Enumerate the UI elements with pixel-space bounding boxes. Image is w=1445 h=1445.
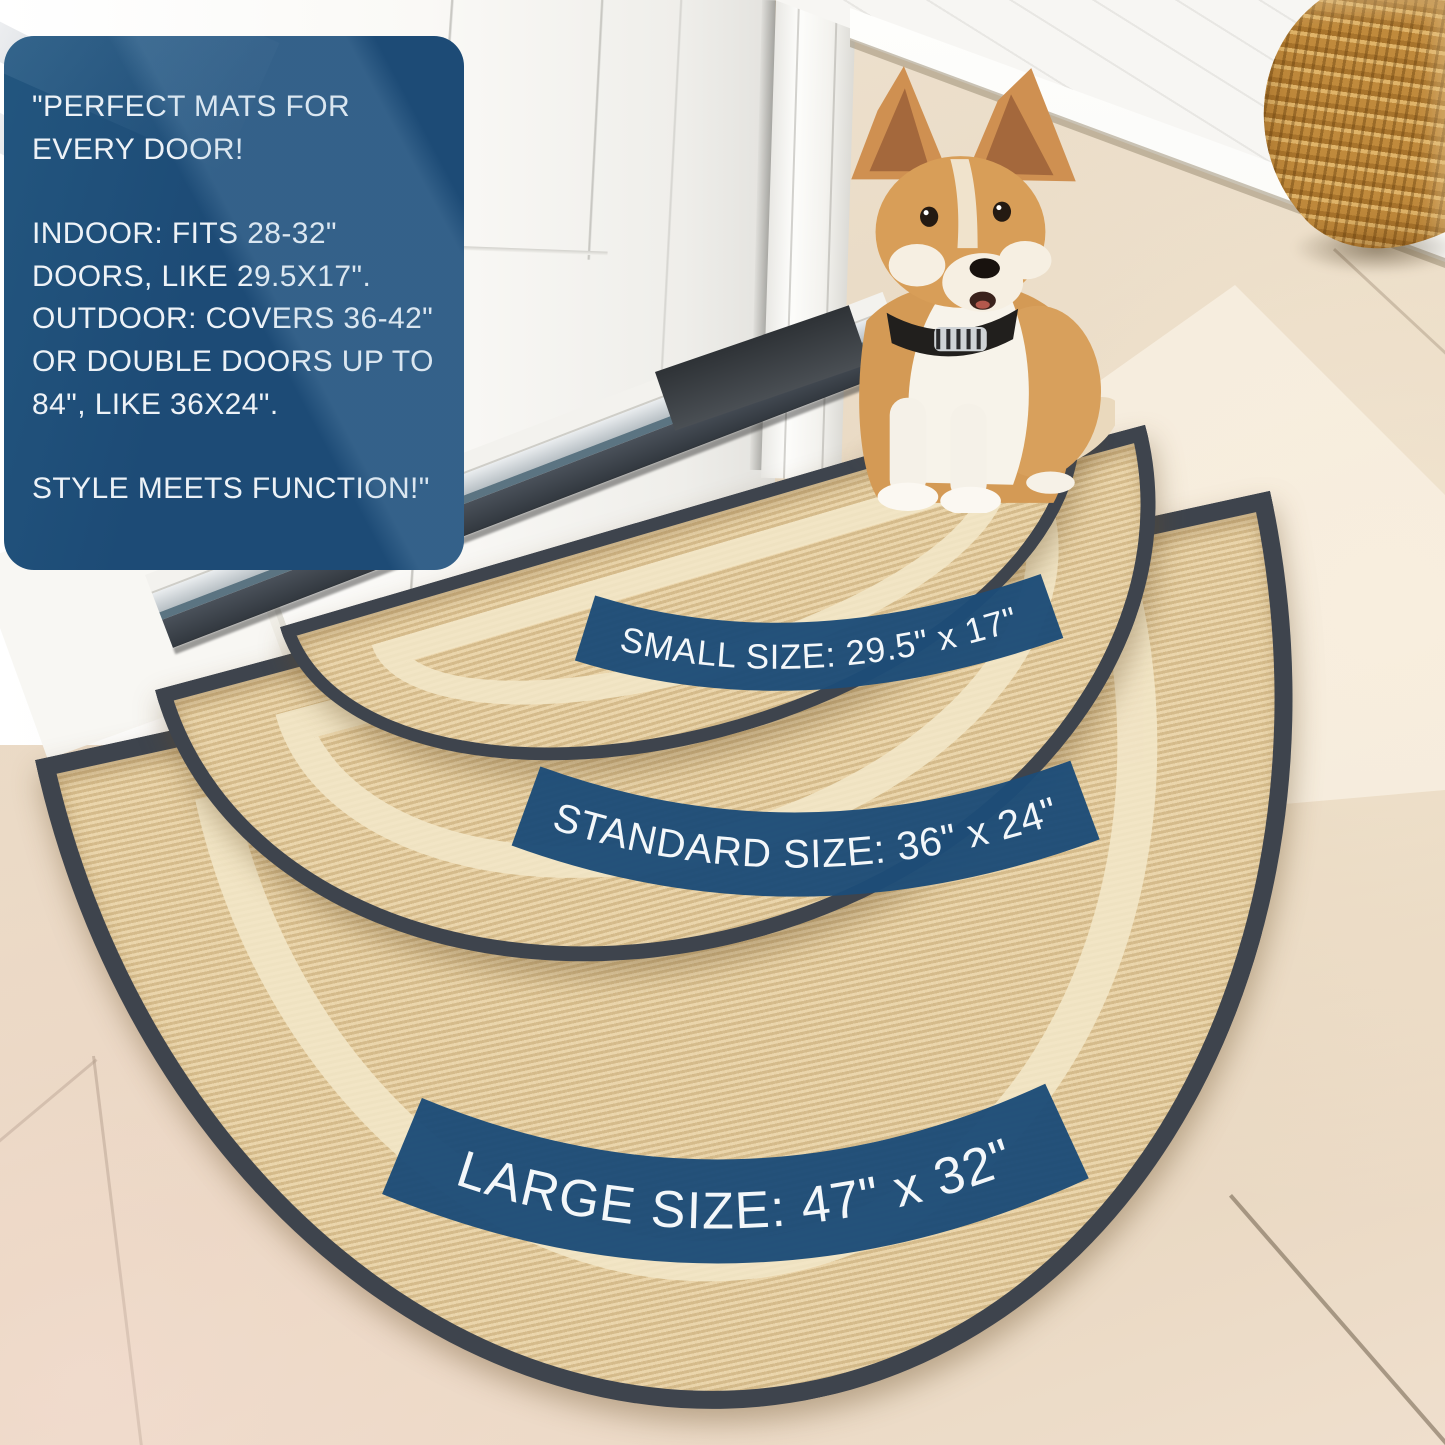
dog-eye <box>993 202 1011 222</box>
dog-paw <box>878 483 939 511</box>
dog-hind-paw <box>1026 472 1075 494</box>
info-box-headline: "PERFECT MATS FOR EVERY DOOR! <box>32 86 436 171</box>
dog-tongue <box>976 301 990 309</box>
dog-front-leg <box>890 398 926 497</box>
eye-glint <box>996 205 1001 210</box>
info-box: "PERFECT MATS FOR EVERY DOOR! INDOOR: FI… <box>4 36 464 570</box>
eye-glint <box>924 210 929 215</box>
dog-cheek <box>889 244 946 286</box>
info-box-tagline: STYLE MEETS FUNCTION!" <box>32 468 436 511</box>
dog-nose <box>970 258 1000 278</box>
info-box-body: INDOOR: FITS 28-32" DOORS, LIKE 29.5X17"… <box>32 213 436 426</box>
dog-front-leg <box>950 404 986 501</box>
product-image: SMALL SIZE: 29.5" x 17" STANDARD SIZE: 3… <box>0 0 1445 1445</box>
dog-eye <box>920 207 938 227</box>
corgi-dog <box>810 58 1115 513</box>
